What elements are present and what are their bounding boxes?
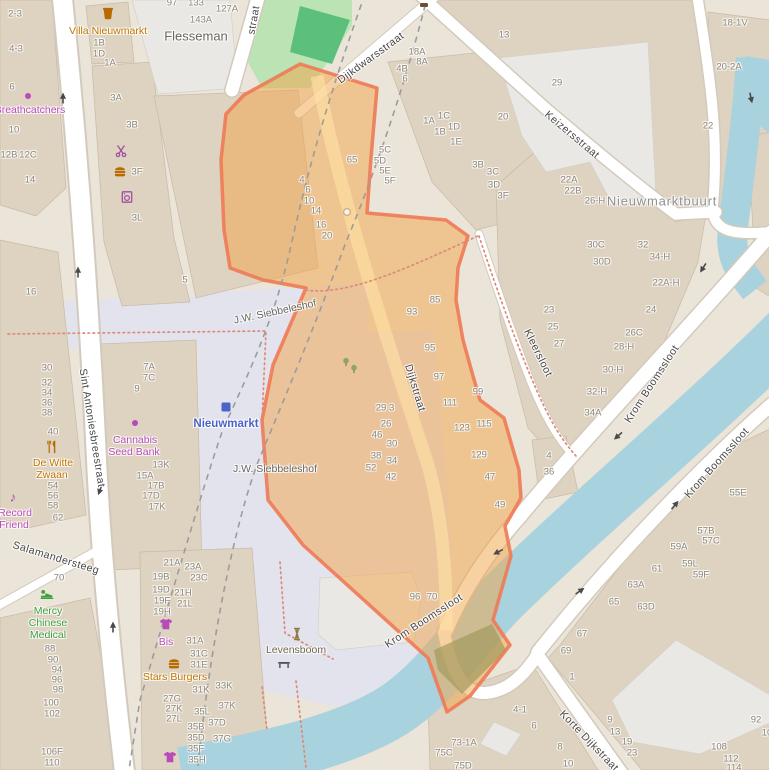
map-viewport[interactable]: ♪ Sint AntoniesbreestraatstraatDijkdwars…	[0, 0, 769, 770]
basemap-canvas	[0, 0, 769, 770]
